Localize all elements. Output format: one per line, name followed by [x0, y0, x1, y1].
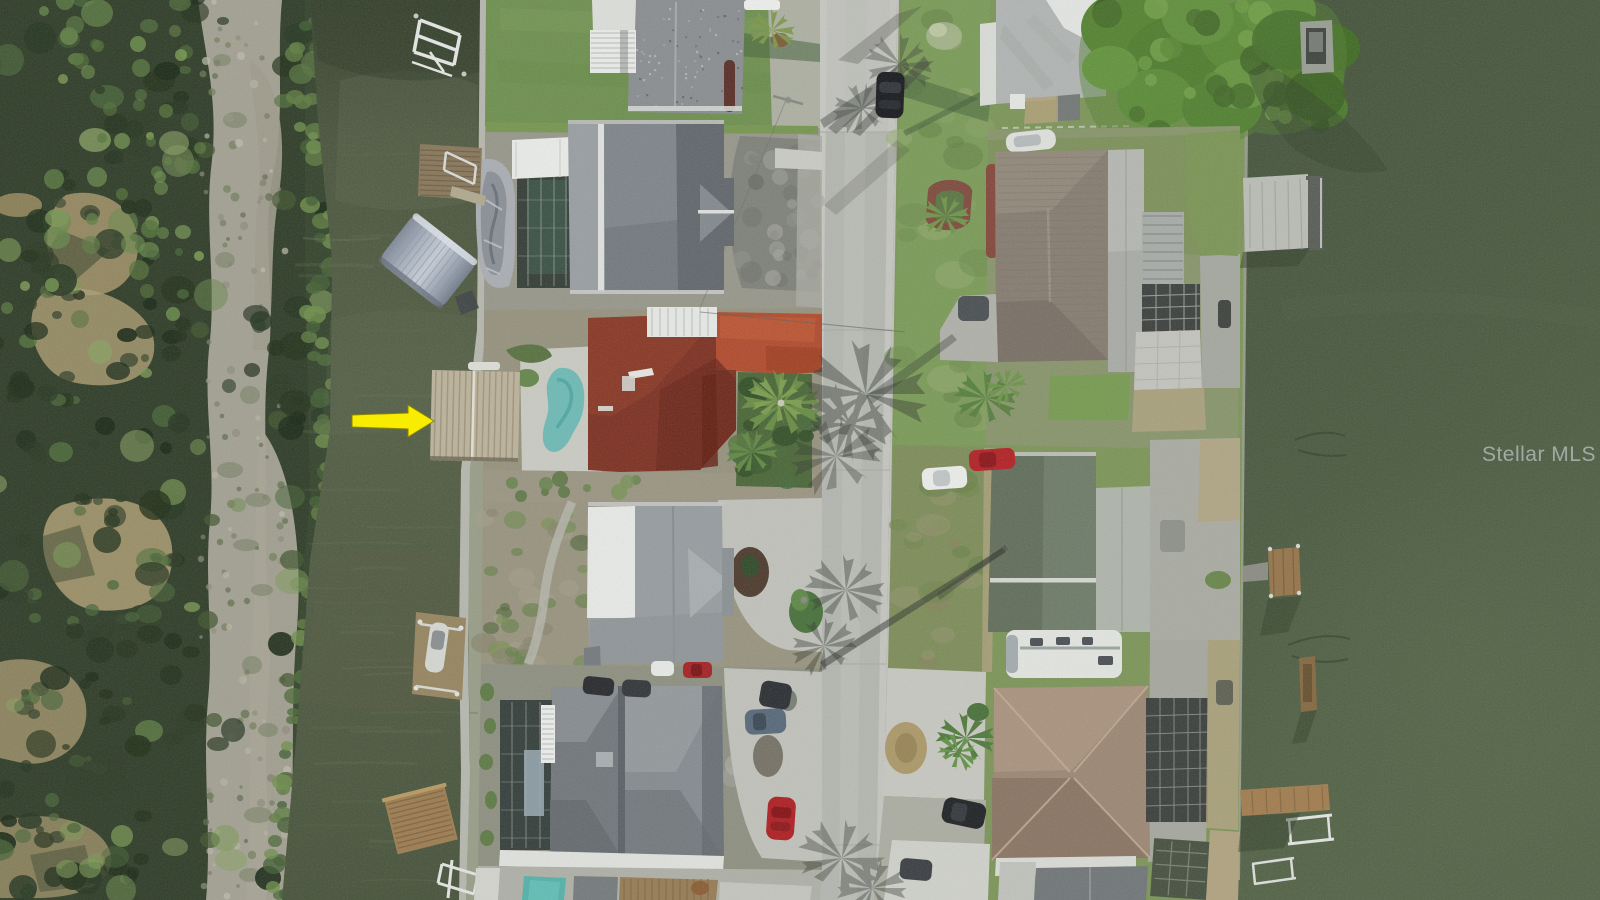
svg-text:Stellar MLS: Stellar MLS — [1482, 443, 1596, 466]
